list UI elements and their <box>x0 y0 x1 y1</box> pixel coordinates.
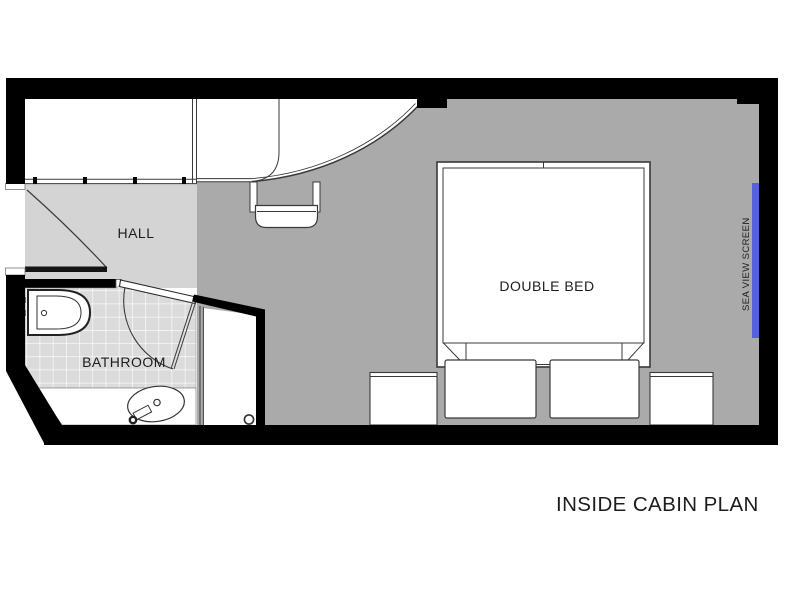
double-bed-label: DOUBLE BED <box>499 278 594 294</box>
nightstand-left <box>370 373 437 426</box>
wall-top <box>6 78 778 99</box>
wall-step-top-right <box>737 99 759 104</box>
wall-right <box>759 78 778 445</box>
entrance-door-recess <box>200 306 256 425</box>
wall-bottom <box>44 425 778 445</box>
toilet-flush-button <box>41 310 46 315</box>
hall-door-jamb-bottom <box>6 268 26 275</box>
entrance-door-knob <box>244 415 253 424</box>
basin-faucet <box>154 399 160 405</box>
plan-title: INSIDE CABIN PLAN <box>556 493 759 516</box>
cabin-floor-plan: SEA VIEW SCREEN HALL BATHROOM DOUBLE BED… <box>0 0 790 593</box>
hall-door-leaf <box>25 267 107 273</box>
basin-drain <box>130 417 136 423</box>
stool-seat <box>256 206 318 228</box>
hall-floor <box>25 184 197 288</box>
bathroom-wall <box>25 279 116 288</box>
sea-view-screen-label: SEA VIEW SCREEN <box>741 217 752 311</box>
bathroom-label: BATHROOM <box>82 354 166 370</box>
wall-left-lower <box>6 275 25 368</box>
pillow-right <box>550 360 639 418</box>
hall-door-jamb-top <box>6 184 26 190</box>
sea-view-screen <box>752 183 760 338</box>
wall-notch-top <box>417 99 447 108</box>
wall-left-upper <box>6 78 25 184</box>
bed-outline <box>437 162 650 367</box>
nightstand-right <box>650 373 713 426</box>
hall-label: HALL <box>117 225 154 241</box>
toilet <box>21 290 90 335</box>
pillow-left <box>445 360 536 418</box>
entrance-door-panel <box>203 308 256 425</box>
